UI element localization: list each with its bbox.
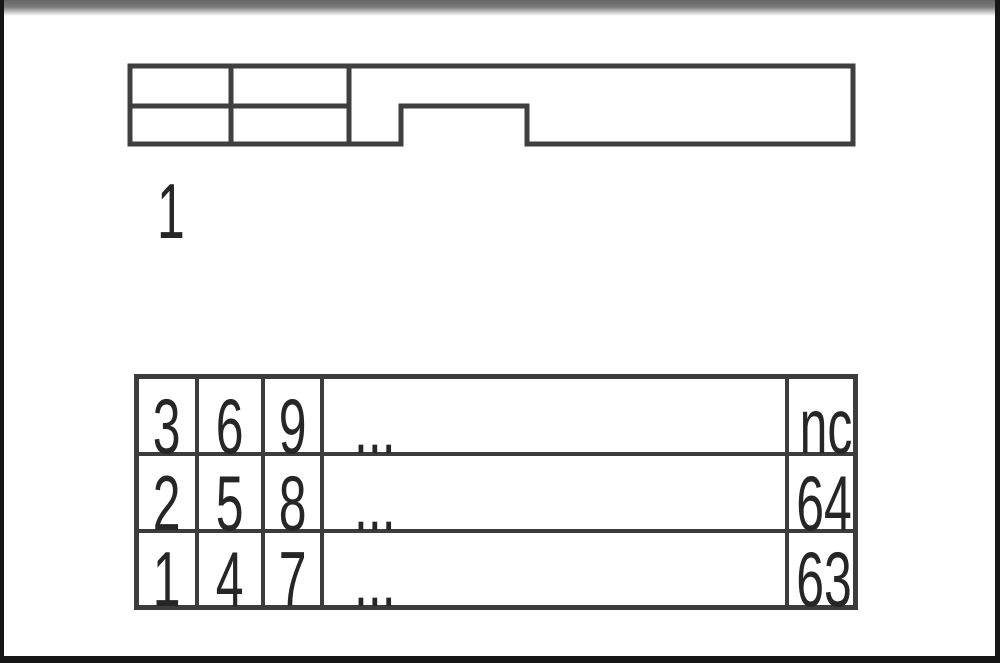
pin-cell: 63 bbox=[789, 533, 853, 605]
pin-number: 5 bbox=[216, 464, 244, 542]
pin-cell: 4 bbox=[199, 533, 265, 605]
pin-number: nc bbox=[799, 387, 852, 465]
pin-cell: 6 bbox=[199, 379, 265, 456]
pin-number: 63 bbox=[796, 540, 852, 618]
pin-cell: 64 bbox=[789, 456, 853, 533]
pin-number: 8 bbox=[279, 464, 307, 542]
pin-cell: 7 bbox=[265, 533, 324, 605]
pin-number: 2 bbox=[153, 464, 181, 542]
pin-cell: 2 bbox=[139, 456, 199, 533]
pin-cell: 3 bbox=[139, 379, 199, 456]
pin-cell: 5 bbox=[199, 456, 265, 533]
pin-number: 7 bbox=[279, 540, 307, 618]
pin-number: 9 bbox=[279, 387, 307, 465]
pin-cell: nc bbox=[789, 379, 853, 456]
figure-page: 1 3 6 9 ... nc 2 5 8 ... 64 1 4 7 ... 63 bbox=[0, 0, 1000, 663]
pin-number: 64 bbox=[796, 464, 852, 542]
pin-ellipsis-cell: ... bbox=[324, 533, 789, 605]
top-gray-bar bbox=[0, 0, 1000, 16]
connector-outline bbox=[130, 66, 853, 144]
pin-number: 6 bbox=[216, 387, 244, 465]
pin-number: 1 bbox=[153, 540, 181, 618]
ellipsis: ... bbox=[354, 387, 396, 465]
pin1-label: 1 bbox=[157, 172, 185, 250]
frame-border-bottom bbox=[0, 656, 1000, 663]
pin-cell: 1 bbox=[139, 533, 199, 605]
pin-cell: 9 bbox=[265, 379, 324, 456]
frame-border-left bbox=[0, 0, 4, 663]
pin-cell: 8 bbox=[265, 456, 324, 533]
pin-number: 3 bbox=[153, 387, 181, 465]
ellipsis: ... bbox=[354, 464, 396, 542]
pin-number: 4 bbox=[216, 540, 244, 618]
pin-table: 3 6 9 ... nc 2 5 8 ... 64 1 4 7 ... 63 bbox=[134, 374, 858, 610]
pin-ellipsis-cell: ... bbox=[324, 456, 789, 533]
frame-border-right bbox=[995, 0, 1000, 663]
ellipsis: ... bbox=[354, 540, 396, 618]
pin-ellipsis-cell: ... bbox=[324, 379, 789, 456]
